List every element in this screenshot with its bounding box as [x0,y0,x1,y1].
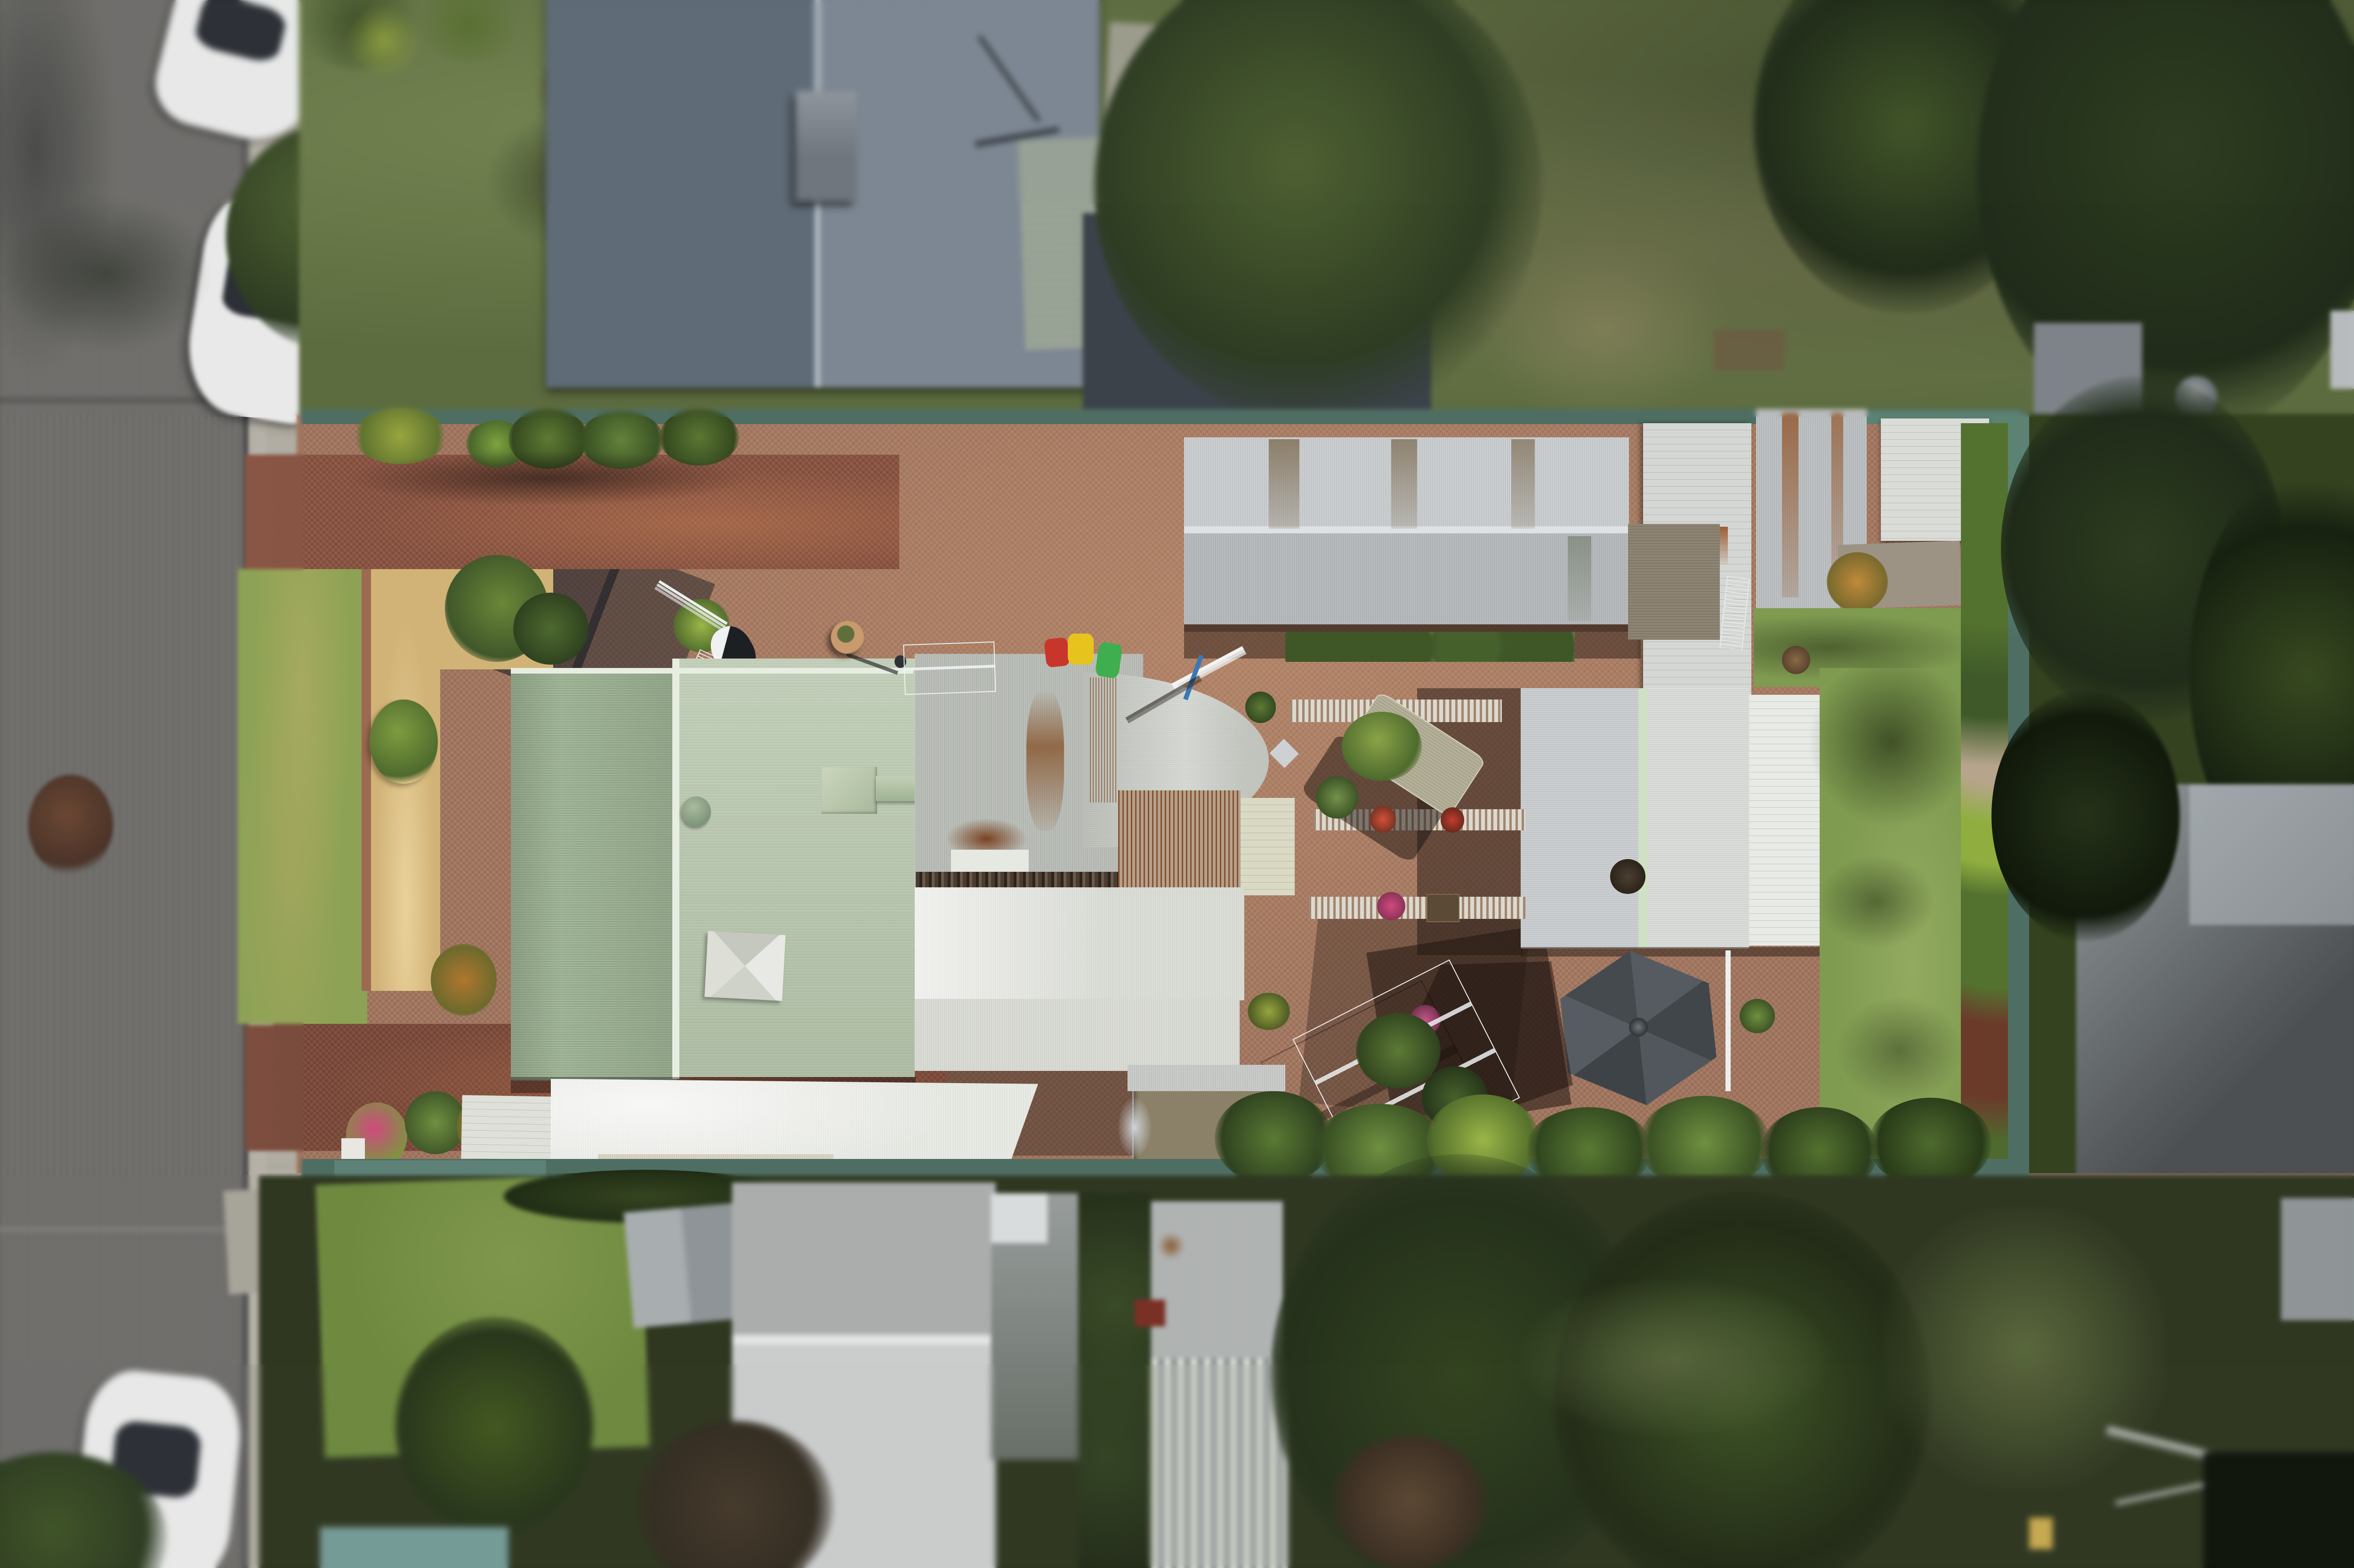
aerial-photo [0,0,2354,1568]
south-olive-lawn2 [1883,1207,2166,1490]
shrub-shadow [348,451,744,505]
lawn-shadow-streak [1836,996,1963,1105]
bench-foliage [1342,712,1422,781]
dead-tree [1332,1436,1488,1568]
south-dark-gap [1078,1193,1151,1568]
south-dark-corner [2203,1452,2354,1568]
terracotta-pot [831,621,864,654]
roof-pyramid-vent [704,931,785,1001]
garden-box [1714,330,1784,370]
red-flower-pot [1370,806,1396,833]
south-tree [395,1317,593,1536]
teal-roof-corner [320,1527,508,1568]
long-shed-lower-slope [1184,532,1629,625]
south-olive-lawn [1521,1279,1827,1436]
pot-plant [1740,999,1775,1033]
fern-pot [1316,776,1358,819]
striped-roof [1151,1358,1288,1568]
car-windshield [193,0,289,65]
far-right-roof-strip [2330,311,2354,389]
white-roof-lower [915,999,1240,1071]
gazebo-post-line [1725,950,1731,1092]
street-tree-shadow [0,196,212,353]
wheelie-bin-yellow [1068,634,1094,665]
planter [1248,993,1290,1030]
rusted-wall-panel [1118,790,1241,889]
planter-box [1427,894,1459,922]
pond-awning [1128,1065,1285,1092]
pot-plant [1245,692,1276,723]
roof-round-vent [682,796,711,827]
rust-stain [1026,690,1064,831]
south-far-right-roof [2281,1198,2354,1320]
house-roof-left-gable [511,673,677,1080]
south-ribbed-roof [1151,1201,1283,1358]
south-white-block [991,1193,1048,1244]
shed-weather-streak [1568,536,1591,621]
cream-panel [1241,798,1295,895]
pot-plant [1610,859,1645,893]
round-shrub [370,700,438,784]
yellow-object [2029,1518,2053,1549]
rust-streak [1782,412,1798,597]
lawn-shadow-streak [1817,854,1935,949]
long-shed-eave-shadow [1184,624,1629,632]
front-lawn [238,569,367,1024]
bare-red-tree [28,775,113,875]
house-ridge [672,659,679,1079]
shed-weather-streak [1511,439,1535,529]
rust-spot [1158,1232,1184,1259]
house-roof-main [677,659,915,1077]
red-flower-pot [1441,807,1464,832]
dry-lawn-patch [1474,235,1733,424]
yellow-bush [344,6,424,75]
garden-shed-eave-shadow [1521,947,1822,957]
path-pot [1782,646,1810,674]
chimney-box [822,767,877,814]
ornamental-band [1309,897,1525,919]
garden-shed-left-slope [1521,688,1638,949]
pond-pebbles [1118,1098,1151,1158]
house-eave-top [511,668,913,674]
shed-weather-streak [1391,439,1417,529]
rust-streaks-bullnose [1090,677,1118,803]
garden-shed-ridge [1638,688,1648,949]
clothesline-frame [903,641,996,695]
front-bush [513,593,588,665]
dark-tree [1991,690,2180,941]
white-roof-mid [915,887,1244,1000]
pebble-bed-under-shed [1285,632,1575,661]
road-seam [0,1226,250,1232]
lawn-tree-shadow [1808,655,1973,828]
timber-deck [1628,524,1720,640]
teal-fence-bottom-sunlit [334,1160,546,1176]
debris-row [916,872,1142,887]
gazebo-finial [1629,1018,1648,1037]
red-chimney [1135,1300,1165,1327]
wheelie-bin-red [1044,637,1070,667]
south-gable-roof [624,1203,749,1328]
pergola-plant [1356,1013,1441,1088]
orange-bush [431,944,497,1016]
pink-flower-pot [1377,892,1405,920]
fence-shrub-yellow [353,408,447,464]
rear-shrub [1869,1098,1991,1189]
orange-shrub [1827,552,1888,612]
mulch-edge [362,569,371,991]
shed-weather-streak [1269,439,1299,529]
neighbour-chimney [796,91,857,201]
east-roof-highlight [2189,784,2354,925]
garden-shed-mid-slope [1648,688,1749,949]
